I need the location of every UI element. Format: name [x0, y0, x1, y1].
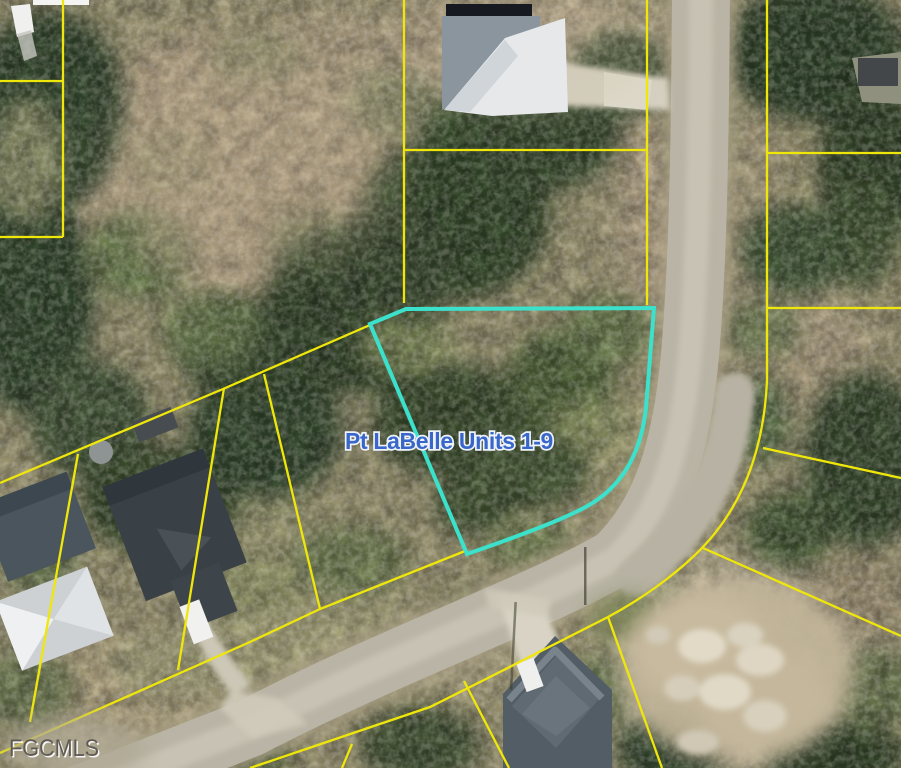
svg-text:FGCMLS: FGCMLS [9, 735, 99, 762]
svg-text:Pt LaBelle Units 1-9: Pt LaBelle Units 1-9 [345, 428, 553, 454]
